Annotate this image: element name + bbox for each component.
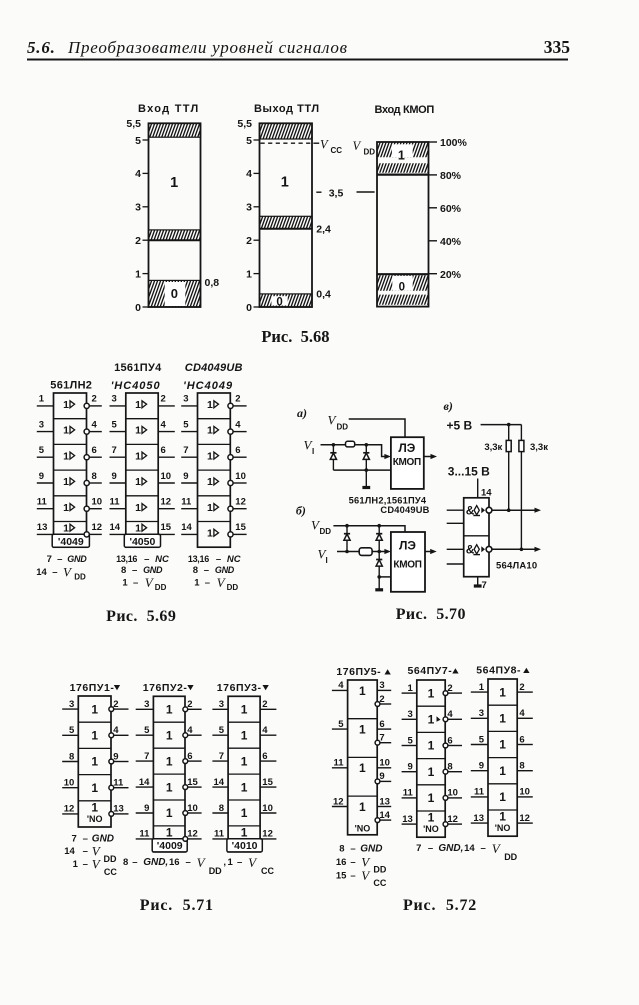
- svg-text:4: 4: [338, 680, 344, 691]
- svg-text:10: 10: [92, 497, 103, 508]
- svg-text:561ЛН2,1561ПУ4: 561ЛН2,1561ПУ4: [349, 496, 427, 506]
- svg-text:6: 6: [262, 751, 267, 762]
- svg-text:–: –: [132, 857, 137, 868]
- svg-text:13: 13: [473, 813, 484, 824]
- svg-text:0: 0: [246, 302, 252, 314]
- svg-text:6: 6: [187, 751, 192, 762]
- svg-text:1: 1: [241, 780, 248, 794]
- svg-text:–: –: [132, 565, 137, 576]
- svg-text:2: 2: [113, 699, 118, 710]
- svg-text:8: 8: [193, 565, 198, 576]
- svg-text:в): в): [444, 399, 453, 413]
- svg-text:5: 5: [112, 419, 118, 430]
- svg-text:–: –: [144, 554, 149, 565]
- svg-text:–: –: [83, 859, 88, 870]
- svg-text:3: 3: [246, 202, 252, 214]
- svg-text:564ПУ8-: 564ПУ8-: [476, 665, 521, 677]
- svg-text:10: 10: [379, 758, 390, 769]
- svg-text:8: 8: [92, 471, 97, 482]
- svg-text:12: 12: [187, 829, 198, 840]
- svg-text:3,5: 3,5: [329, 188, 344, 200]
- svg-text:15: 15: [336, 870, 347, 881]
- svg-text:3: 3: [408, 709, 413, 720]
- svg-text:6: 6: [519, 734, 524, 745]
- svg-text:2,4: 2,4: [316, 223, 331, 235]
- svg-text:'HC4050: 'HC4050: [111, 380, 161, 392]
- svg-text:NC: NC: [155, 554, 169, 565]
- svg-text:11: 11: [139, 829, 150, 840]
- svg-text:12: 12: [92, 522, 103, 533]
- svg-text:1: 1: [428, 791, 435, 805]
- svg-text:ЛЭ: ЛЭ: [399, 539, 416, 553]
- svg-text:–: –: [204, 565, 209, 576]
- svg-text:GND: GND: [215, 565, 235, 575]
- svg-text:1: 1: [398, 149, 405, 163]
- svg-text:13,16: 13,16: [116, 554, 137, 564]
- svg-text:–: –: [428, 843, 433, 854]
- svg-text:8: 8: [121, 565, 126, 576]
- svg-text:14: 14: [464, 843, 475, 854]
- svg-text:9: 9: [479, 761, 484, 772]
- svg-text:7: 7: [47, 554, 52, 565]
- svg-text:Рис. 5.70: Рис. 5.70: [396, 606, 466, 623]
- svg-text:4: 4: [246, 168, 252, 180]
- svg-text:CC: CC: [104, 867, 117, 877]
- svg-text:1: 1: [63, 399, 69, 411]
- svg-text:1: 1: [91, 729, 98, 743]
- svg-text:1: 1: [207, 528, 213, 540]
- svg-text:8: 8: [519, 761, 524, 772]
- svg-text:4: 4: [519, 708, 525, 719]
- svg-text:CD4049UB: CD4049UB: [185, 362, 243, 374]
- svg-text:6: 6: [379, 719, 384, 730]
- svg-text:7: 7: [379, 733, 384, 744]
- svg-text:5: 5: [39, 445, 45, 456]
- svg-text:1: 1: [135, 522, 141, 534]
- svg-text:15: 15: [161, 522, 172, 533]
- svg-text:5: 5: [408, 735, 414, 746]
- svg-text:12: 12: [519, 813, 530, 824]
- svg-text:1: 1: [194, 578, 200, 589]
- svg-text:1: 1: [63, 502, 69, 514]
- svg-text:8: 8: [123, 857, 128, 868]
- svg-text:–: –: [133, 578, 138, 589]
- svg-text:3: 3: [183, 394, 188, 405]
- svg-text:DD: DD: [320, 527, 332, 536]
- svg-text:4: 4: [447, 709, 453, 720]
- svg-text:2: 2: [262, 699, 267, 710]
- svg-text:176ПУ3-: 176ПУ3-: [217, 682, 262, 694]
- svg-text:11: 11: [214, 829, 225, 840]
- svg-text:1561ПУ4: 1561ПУ4: [114, 362, 162, 374]
- svg-text:1: 1: [207, 450, 213, 462]
- svg-text:80%: 80%: [440, 170, 462, 182]
- svg-text:14: 14: [181, 522, 192, 533]
- svg-text:14: 14: [481, 488, 492, 499]
- svg-text:,: ,: [223, 857, 226, 868]
- svg-text:5: 5: [135, 135, 141, 147]
- svg-text:12: 12: [333, 796, 344, 807]
- svg-text:0: 0: [135, 302, 141, 314]
- svg-text:14: 14: [36, 567, 47, 578]
- svg-text:Рис. 5.71: Рис. 5.71: [140, 897, 214, 914]
- svg-text:176ПУ2-: 176ПУ2-: [143, 682, 188, 694]
- svg-text:176ПУ1-: 176ПУ1-: [70, 682, 115, 694]
- svg-text:1: 1: [91, 702, 98, 716]
- svg-text:1: 1: [499, 685, 506, 699]
- svg-text:1: 1: [63, 476, 69, 488]
- svg-text:2: 2: [187, 699, 192, 710]
- svg-text:1: 1: [63, 425, 69, 437]
- svg-text:1: 1: [479, 682, 485, 693]
- svg-text:9: 9: [112, 471, 117, 482]
- svg-text:1: 1: [499, 738, 506, 752]
- svg-text:а): а): [297, 406, 307, 420]
- svg-text:7: 7: [219, 751, 224, 762]
- svg-text:14: 14: [110, 522, 121, 533]
- svg-text:Выход ТТЛ: Выход ТТЛ: [254, 103, 320, 115]
- svg-text:2: 2: [92, 394, 97, 405]
- svg-text:2: 2: [161, 394, 166, 405]
- svg-text:4: 4: [92, 419, 98, 430]
- svg-text:–: –: [52, 567, 57, 578]
- svg-text:3: 3: [219, 699, 224, 710]
- svg-text:1: 1: [246, 268, 252, 280]
- svg-text:176ПУ5-: 176ПУ5-: [336, 666, 381, 678]
- svg-text:1: 1: [207, 476, 213, 488]
- svg-text:8: 8: [339, 844, 344, 855]
- svg-text:–: –: [481, 843, 486, 854]
- svg-text:I: I: [326, 556, 328, 565]
- svg-text:Рис. 5.72: Рис. 5.72: [403, 897, 477, 914]
- svg-text:'4050: '4050: [129, 536, 155, 548]
- svg-text:2: 2: [235, 394, 240, 405]
- svg-text:16: 16: [169, 857, 180, 868]
- svg-text:DD: DD: [155, 583, 167, 592]
- svg-text:1: 1: [359, 723, 366, 737]
- svg-text:DD: DD: [227, 583, 239, 592]
- svg-text:+5 В: +5 В: [447, 419, 473, 433]
- svg-text:5: 5: [479, 734, 485, 745]
- svg-text:КМОП: КМОП: [393, 457, 421, 468]
- svg-text:8: 8: [69, 751, 74, 762]
- svg-text:8: 8: [447, 762, 452, 773]
- svg-text:4: 4: [135, 168, 141, 180]
- svg-text:Преобразователи уровней сигнал: Преобразователи уровней сигналов: [67, 38, 348, 57]
- svg-text:Рис. 5.69: Рис. 5.69: [106, 608, 176, 625]
- svg-text:GND,: GND,: [143, 857, 168, 868]
- svg-text:9: 9: [39, 471, 44, 482]
- svg-text:DD: DD: [504, 852, 517, 862]
- svg-text:5: 5: [246, 135, 252, 147]
- svg-text:1: 1: [428, 811, 435, 825]
- svg-text:15: 15: [235, 522, 246, 533]
- svg-text:5: 5: [144, 725, 150, 736]
- svg-text:20%: 20%: [440, 269, 462, 281]
- svg-text:15: 15: [187, 777, 198, 788]
- svg-text:DD: DD: [373, 865, 386, 875]
- svg-text:1: 1: [166, 703, 173, 717]
- svg-text:1: 1: [91, 755, 98, 769]
- svg-text:1: 1: [241, 728, 248, 742]
- svg-text:14: 14: [214, 777, 225, 788]
- svg-text:10: 10: [64, 778, 75, 789]
- svg-text:2: 2: [135, 235, 141, 247]
- svg-text:12: 12: [64, 804, 75, 815]
- svg-text:3: 3: [479, 708, 484, 719]
- svg-text:1: 1: [499, 790, 506, 804]
- svg-text:'NO: 'NO: [495, 823, 511, 833]
- svg-text:1: 1: [39, 394, 45, 405]
- svg-text:1: 1: [281, 175, 289, 191]
- svg-text:7: 7: [416, 843, 421, 854]
- svg-text:1: 1: [241, 806, 248, 820]
- svg-text:11: 11: [474, 787, 485, 798]
- svg-text:2: 2: [519, 682, 524, 693]
- svg-text:GND: GND: [67, 554, 87, 564]
- svg-text:6: 6: [235, 445, 240, 456]
- svg-text:3,3к: 3,3к: [484, 442, 502, 453]
- svg-text:9: 9: [144, 803, 149, 814]
- svg-text:–: –: [237, 857, 242, 868]
- svg-text:Вход КМОП: Вход КМОП: [375, 104, 435, 116]
- svg-text:1: 1: [428, 765, 435, 779]
- svg-text:5: 5: [183, 419, 189, 430]
- svg-text:561ЛН2: 561ЛН2: [50, 380, 92, 392]
- svg-text:60%: 60%: [440, 203, 462, 215]
- svg-text:'4049: '4049: [58, 536, 84, 548]
- svg-text:0,8: 0,8: [205, 277, 220, 289]
- svg-text:12: 12: [447, 814, 458, 825]
- svg-text:10: 10: [187, 803, 198, 814]
- svg-text:DD: DD: [337, 423, 349, 432]
- svg-text:CC: CC: [331, 146, 343, 155]
- svg-text:1: 1: [63, 522, 69, 534]
- svg-text:5: 5: [69, 725, 75, 736]
- svg-text:'4010: '4010: [232, 840, 258, 852]
- svg-text:4: 4: [113, 725, 119, 736]
- svg-text:1: 1: [359, 684, 366, 698]
- svg-text:1: 1: [499, 764, 506, 778]
- svg-text:3: 3: [69, 699, 74, 710]
- svg-text:11: 11: [113, 778, 124, 789]
- svg-text:DD: DD: [104, 854, 117, 864]
- svg-text:1: 1: [207, 502, 213, 514]
- svg-text:–: –: [205, 578, 210, 589]
- svg-text:1: 1: [135, 425, 141, 437]
- svg-text:7: 7: [482, 580, 487, 591]
- svg-text:2: 2: [246, 235, 252, 247]
- svg-text:3: 3: [379, 680, 384, 691]
- svg-text:КМОП: КМОП: [393, 560, 421, 571]
- svg-text:1: 1: [63, 450, 69, 462]
- svg-text:1: 1: [135, 399, 141, 411]
- svg-text:1: 1: [359, 800, 366, 814]
- svg-text:3,3к: 3,3к: [530, 442, 548, 453]
- svg-text:5: 5: [338, 719, 344, 730]
- svg-text:10: 10: [235, 471, 246, 482]
- svg-text:5: 5: [219, 725, 225, 736]
- svg-text:1: 1: [166, 754, 173, 768]
- svg-text:16: 16: [336, 857, 347, 868]
- svg-text:1: 1: [135, 268, 141, 280]
- svg-text:4: 4: [262, 725, 268, 736]
- svg-text:5,5: 5,5: [237, 118, 252, 130]
- svg-text:'4009: '4009: [157, 840, 183, 852]
- svg-text:1: 1: [166, 806, 173, 820]
- svg-text:1: 1: [241, 754, 248, 768]
- svg-text:0,4: 0,4: [316, 289, 331, 301]
- svg-text:CC: CC: [261, 866, 274, 876]
- svg-text:13: 13: [402, 814, 413, 825]
- svg-text:13,16: 13,16: [188, 554, 209, 564]
- svg-text:DD: DD: [74, 573, 86, 582]
- svg-text:5,5: 5,5: [126, 118, 141, 130]
- svg-text:15: 15: [262, 777, 273, 788]
- svg-text:CC: CC: [373, 878, 386, 888]
- svg-text:12: 12: [262, 829, 273, 840]
- svg-text:14: 14: [64, 846, 75, 857]
- svg-text:6: 6: [161, 445, 166, 456]
- svg-text:9: 9: [113, 751, 118, 762]
- svg-text:4: 4: [187, 725, 193, 736]
- svg-text:7: 7: [112, 445, 117, 456]
- svg-text:1: 1: [166, 826, 173, 840]
- svg-text:12: 12: [161, 497, 172, 508]
- svg-text:11: 11: [403, 788, 414, 799]
- svg-text:DD: DD: [209, 866, 222, 876]
- svg-text:9: 9: [183, 471, 188, 482]
- svg-text:1: 1: [135, 450, 141, 462]
- svg-text:1: 1: [241, 826, 248, 840]
- svg-text:1: 1: [122, 578, 128, 589]
- svg-text:10: 10: [161, 471, 172, 482]
- svg-text:NC: NC: [227, 554, 241, 565]
- svg-text:1: 1: [73, 859, 79, 870]
- svg-text:3: 3: [39, 419, 44, 430]
- svg-text:'HC4049: 'HC4049: [183, 380, 233, 392]
- svg-text:14: 14: [379, 810, 390, 821]
- svg-text:8: 8: [219, 803, 224, 814]
- svg-text:10: 10: [262, 803, 273, 814]
- svg-text:CD4049UB: CD4049UB: [380, 505, 429, 515]
- svg-text:100%: 100%: [440, 137, 468, 149]
- svg-text:2: 2: [379, 694, 384, 705]
- svg-text:11: 11: [110, 497, 121, 508]
- svg-text:7: 7: [144, 751, 149, 762]
- svg-text:3...15 В: 3...15 В: [448, 465, 490, 479]
- svg-text:1: 1: [499, 712, 506, 726]
- svg-text:564ПУ7-: 564ПУ7-: [408, 665, 453, 677]
- svg-text:–: –: [350, 857, 355, 868]
- svg-text:1: 1: [91, 801, 98, 815]
- svg-text:1: 1: [135, 502, 141, 514]
- svg-text:'NO: 'NO: [87, 814, 103, 824]
- svg-text:5.6.: 5.6.: [27, 38, 56, 57]
- svg-text:Вход ТТЛ: Вход ТТЛ: [138, 103, 200, 115]
- svg-text:1: 1: [91, 781, 98, 795]
- svg-text:1: 1: [428, 713, 435, 727]
- svg-text:–: –: [83, 846, 88, 857]
- svg-text:GND: GND: [143, 565, 163, 575]
- svg-text:13: 13: [379, 796, 390, 807]
- svg-text:1: 1: [228, 857, 234, 868]
- svg-text:4: 4: [235, 419, 241, 430]
- svg-text:9: 9: [408, 762, 413, 773]
- svg-text:1: 1: [170, 175, 178, 191]
- svg-text:'NO: 'NO: [423, 824, 439, 834]
- svg-text:4: 4: [161, 419, 167, 430]
- svg-text:1: 1: [408, 683, 414, 694]
- svg-text:–: –: [57, 554, 62, 565]
- svg-text:6: 6: [447, 735, 452, 746]
- svg-text:12: 12: [235, 497, 246, 508]
- svg-text:DD: DD: [364, 148, 376, 157]
- svg-text:1: 1: [428, 739, 435, 753]
- svg-text:14: 14: [139, 777, 150, 788]
- svg-text:0: 0: [399, 282, 405, 294]
- svg-text:–: –: [83, 834, 88, 845]
- svg-text:564ЛА10: 564ЛА10: [496, 561, 537, 572]
- svg-text:11: 11: [334, 758, 345, 769]
- svg-text:11: 11: [37, 497, 48, 508]
- svg-text:6: 6: [92, 445, 97, 456]
- svg-text:б): б): [296, 504, 306, 518]
- svg-text:1: 1: [499, 810, 506, 824]
- svg-text:0: 0: [171, 286, 178, 301]
- svg-text:Рис. 5.68: Рис. 5.68: [261, 327, 329, 346]
- svg-text:–: –: [186, 857, 191, 868]
- svg-text:7: 7: [72, 834, 77, 845]
- svg-text:'NO: 'NO: [355, 824, 371, 834]
- svg-text:40%: 40%: [440, 236, 462, 248]
- svg-text:11: 11: [181, 497, 192, 508]
- svg-text:1: 1: [207, 425, 213, 437]
- svg-text:1: 1: [207, 399, 213, 411]
- svg-text:–: –: [350, 844, 355, 855]
- svg-text:10: 10: [519, 787, 530, 798]
- svg-text:GND,: GND,: [438, 843, 463, 854]
- svg-text:1: 1: [241, 703, 248, 717]
- svg-text:–: –: [216, 554, 221, 565]
- svg-text:1: 1: [428, 686, 435, 700]
- svg-text:1: 1: [166, 780, 173, 794]
- svg-text:1: 1: [135, 476, 141, 488]
- svg-text:2: 2: [447, 683, 452, 694]
- svg-text:I: I: [312, 447, 314, 456]
- svg-text:GND: GND: [360, 844, 382, 855]
- svg-text:335: 335: [544, 37, 571, 57]
- svg-text:3: 3: [144, 699, 149, 710]
- svg-text:3: 3: [135, 202, 141, 214]
- svg-text:3: 3: [112, 394, 117, 405]
- svg-text:13: 13: [113, 804, 124, 815]
- svg-text:7: 7: [183, 445, 188, 456]
- svg-text:ЛЭ: ЛЭ: [398, 441, 415, 455]
- svg-text:1: 1: [359, 761, 366, 775]
- svg-text:–: –: [350, 870, 355, 881]
- svg-text:13: 13: [37, 522, 48, 533]
- svg-text:10: 10: [447, 788, 458, 799]
- svg-text:9: 9: [379, 771, 384, 782]
- svg-text:1: 1: [166, 728, 173, 742]
